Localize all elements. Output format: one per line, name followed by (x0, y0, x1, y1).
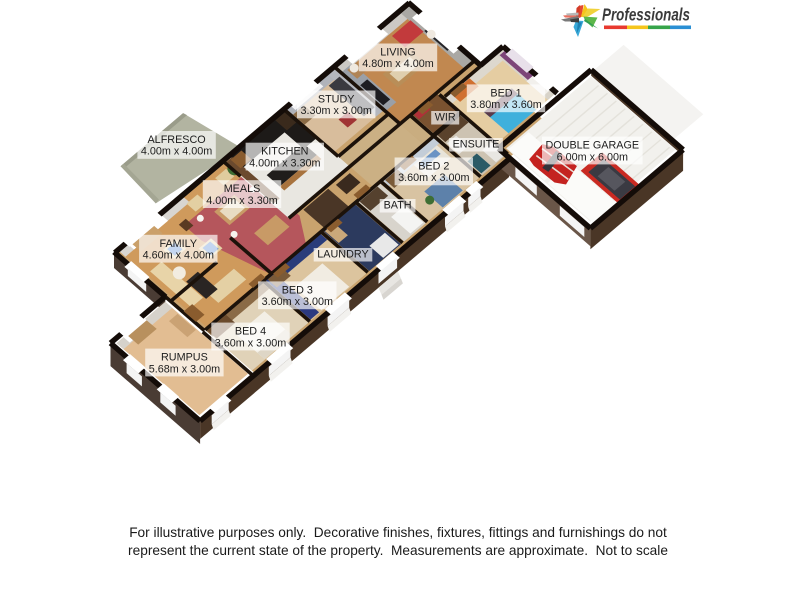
svg-text:4.00m x 3.30m: 4.00m x 3.30m (249, 157, 320, 169)
svg-text:LAUNDRY: LAUNDRY (317, 249, 368, 261)
svg-text:BED 1: BED 1 (490, 87, 521, 99)
svg-text:3.60m x 3.00m: 3.60m x 3.00m (398, 172, 469, 184)
svg-text:BED 3: BED 3 (282, 284, 313, 296)
svg-text:BATH: BATH (384, 200, 412, 212)
svg-text:MEALS: MEALS (224, 183, 261, 195)
svg-text:WIR: WIR (435, 112, 456, 124)
svg-text:ENSUITE: ENSUITE (453, 139, 500, 151)
svg-text:3.60m x 3.00m: 3.60m x 3.00m (262, 296, 333, 308)
svg-text:5.68m x 3.00m: 5.68m x 3.00m (149, 363, 220, 375)
svg-text:FAMILY: FAMILY (159, 238, 197, 250)
svg-text:ALFRESCO: ALFRESCO (147, 134, 205, 146)
svg-text:4.60m x 4.00m: 4.60m x 4.00m (143, 250, 214, 262)
svg-text:BED 4: BED 4 (235, 326, 266, 338)
svg-text:represent the current state of: represent the current state of the prope… (128, 543, 668, 558)
svg-text:Professionals: Professionals (602, 5, 690, 25)
svg-text:3.30m x 3.00m: 3.30m x 3.00m (300, 105, 371, 117)
svg-text:KITCHEN: KITCHEN (261, 146, 308, 158)
svg-text:RUMPUS: RUMPUS (161, 352, 208, 364)
svg-text:LIVING: LIVING (380, 47, 415, 59)
svg-text:STUDY: STUDY (318, 94, 355, 106)
svg-text:4.80m x 4.00m: 4.80m x 4.00m (362, 58, 433, 70)
svg-text:4.00m x 3.30m: 4.00m x 3.30m (206, 195, 277, 207)
svg-text:DOUBLE GARAGE: DOUBLE GARAGE (545, 140, 639, 152)
svg-text:For illustrative purposes only: For illustrative purposes only. Decorati… (129, 525, 667, 540)
svg-text:6.00m x 6.00m: 6.00m x 6.00m (557, 151, 628, 163)
svg-text:BED 2: BED 2 (418, 161, 449, 173)
svg-text:3.60m x 3.00m: 3.60m x 3.00m (215, 337, 286, 349)
svg-text:4.00m x 4.00m: 4.00m x 4.00m (141, 146, 212, 158)
svg-text:3.80m x 3.60m: 3.80m x 3.60m (470, 99, 541, 111)
